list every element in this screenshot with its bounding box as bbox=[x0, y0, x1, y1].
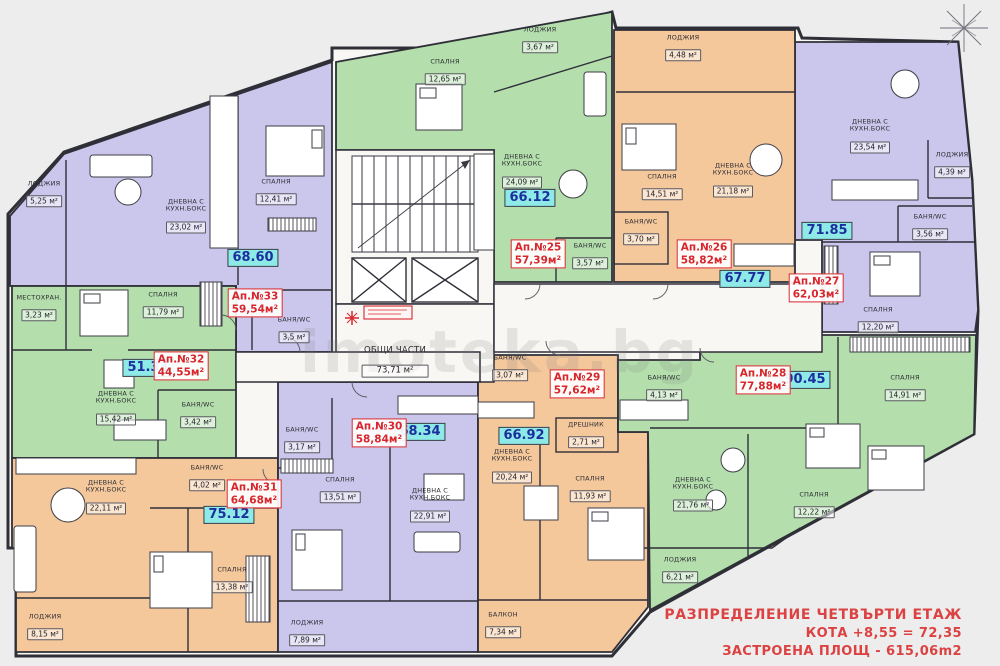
apt28-label: Ап.№2877,88м² bbox=[736, 365, 791, 394]
compass-icon bbox=[940, 4, 988, 52]
total-area-apt31: 75.12 bbox=[203, 506, 254, 524]
room-apt29-living: дневна с кухн.бокс20,24 м² bbox=[487, 449, 537, 484]
apt33-label: Ап.№3359,54м² bbox=[228, 288, 283, 317]
room-apt29-bath: баня/wc3,07 м² bbox=[492, 354, 528, 381]
room-apt27-bedroom: спалня12,20 м² bbox=[858, 306, 899, 333]
common-area-label: общи части73,71 м² bbox=[362, 347, 429, 378]
room-apt28-living: дневна с кухн.бокс21,76 м² bbox=[668, 477, 718, 512]
room-apt28-loggia: лоджия6,21 м² bbox=[662, 556, 698, 583]
room-apt30-bath: баня/wc3,17 м² bbox=[284, 426, 320, 453]
room-apt29-dresser: дрешник2,71 м² bbox=[568, 421, 604, 448]
room-apt27-bath: баня/wc3,56 м² bbox=[912, 213, 948, 240]
room-apt30-living: дневна с кухн.бокс22,91 м² bbox=[405, 488, 455, 523]
room-apt33-living: дневна с кухн.бокс23,02 м² bbox=[161, 199, 211, 234]
apt30-label: Ап.№3058,84м² bbox=[352, 418, 407, 447]
built-area-note: ЗАСТРОЕНА ПЛОЩ - 615,06m2 bbox=[664, 644, 962, 659]
room-apt32-bath: баня/wc3,42 м² bbox=[180, 401, 216, 428]
room-apt26-living: дневна с кухн.бокс21,18 м² bbox=[708, 163, 758, 198]
room-apt25-living: дневна с кухн.бокс24,09 м² bbox=[497, 154, 547, 189]
elevator-shafts bbox=[352, 258, 478, 302]
room-apt28-bedroom2: спалня12,22 м² bbox=[794, 491, 835, 518]
total-area-apt33: 68.60 bbox=[227, 249, 278, 267]
apt32-label: Ап.№3244,55м² bbox=[154, 351, 209, 380]
room-apt25-loggia: лоджия3,67 м² bbox=[522, 26, 558, 53]
total-area-apt26: 67.77 bbox=[719, 270, 770, 288]
room-apt25-bath: баня/wc3,57 м² bbox=[572, 242, 608, 269]
total-area-apt25: 66.12 bbox=[504, 189, 555, 207]
apt25-label: Ап.№2557,39м² bbox=[511, 239, 566, 268]
room-apt25-bedroom: спалня12,65 м² bbox=[425, 58, 466, 85]
apt29-label: Ап.№2957,62м² bbox=[550, 369, 605, 398]
room-apt26-bedroom: спалня14,51 м² bbox=[642, 173, 683, 200]
apt27-label: Ап.№2762,03м² bbox=[789, 273, 844, 302]
staircase bbox=[352, 156, 478, 252]
room-apt33-bedroom: спалня12,41 м² bbox=[256, 178, 297, 205]
room-apt31-loggia: лоджия8,15 м² bbox=[27, 613, 63, 640]
apt31-label: Ап.№3164,68м² bbox=[227, 479, 282, 508]
room-apt28-bedroom1: спалня14,91 м² bbox=[885, 374, 926, 401]
total-area-apt27: 71.85 bbox=[801, 222, 852, 240]
room-apt28-bath: баня/wc4,13 м² bbox=[646, 374, 682, 401]
room-apt33-bath: баня/wc3,5 м² bbox=[278, 316, 311, 343]
room-apt32-living: дневна с кухн.бокс15,42 м² bbox=[91, 391, 141, 426]
room-apt31-living: дневна с кухн.бокс22,11 м² bbox=[81, 480, 131, 515]
room-apt30-bedroom: спалня13,51 м² bbox=[320, 476, 361, 503]
room-apt26-loggia: лоджия4,48 м² bbox=[665, 34, 701, 61]
elevation-note: КОТА +8,55 = 72,35 bbox=[664, 626, 962, 641]
room-apt29-bedroom: спалня11,93 м² bbox=[570, 475, 611, 502]
room-apt27-loggia: лоджия4,39 м² bbox=[934, 151, 970, 178]
room-apt32-bedroom: спалня11,79 м² bbox=[143, 291, 184, 318]
total-area-apt29: 66.92 bbox=[498, 427, 549, 445]
room-apt27-living: дневна с кухн.бокс23,54 м² bbox=[845, 119, 895, 154]
room-apt30-loggia: лоджия7,89 м² bbox=[289, 619, 325, 646]
room-apt31-bedroom: спалня13,38 м² bbox=[212, 566, 253, 593]
room-apt31-bath: баня/wc4,02 м² bbox=[189, 464, 225, 491]
room-apt32-storage: местохран.3,23 м² bbox=[16, 294, 61, 321]
apt26-label: Ап.№2658,82м² bbox=[677, 239, 732, 268]
room-apt33-loggia: лоджия5,25 м² bbox=[26, 180, 62, 207]
floor-title: РАЗПРЕДЕЛЕНИЕ ЧЕТВЪРТИ ЕТАЖ bbox=[664, 607, 962, 623]
room-apt26-bath: баня/wc3,70 м² bbox=[623, 218, 659, 245]
floor-plan-page: imoteka.bg 68.60 66.12 67.77 71.85 90.45… bbox=[0, 0, 1000, 666]
title-block: РАЗПРЕДЕЛЕНИЕ ЧЕТВЪРТИ ЕТАЖ КОТА +8,55 =… bbox=[664, 607, 962, 659]
room-apt29-balcony: балкон7,34 м² bbox=[485, 611, 521, 638]
